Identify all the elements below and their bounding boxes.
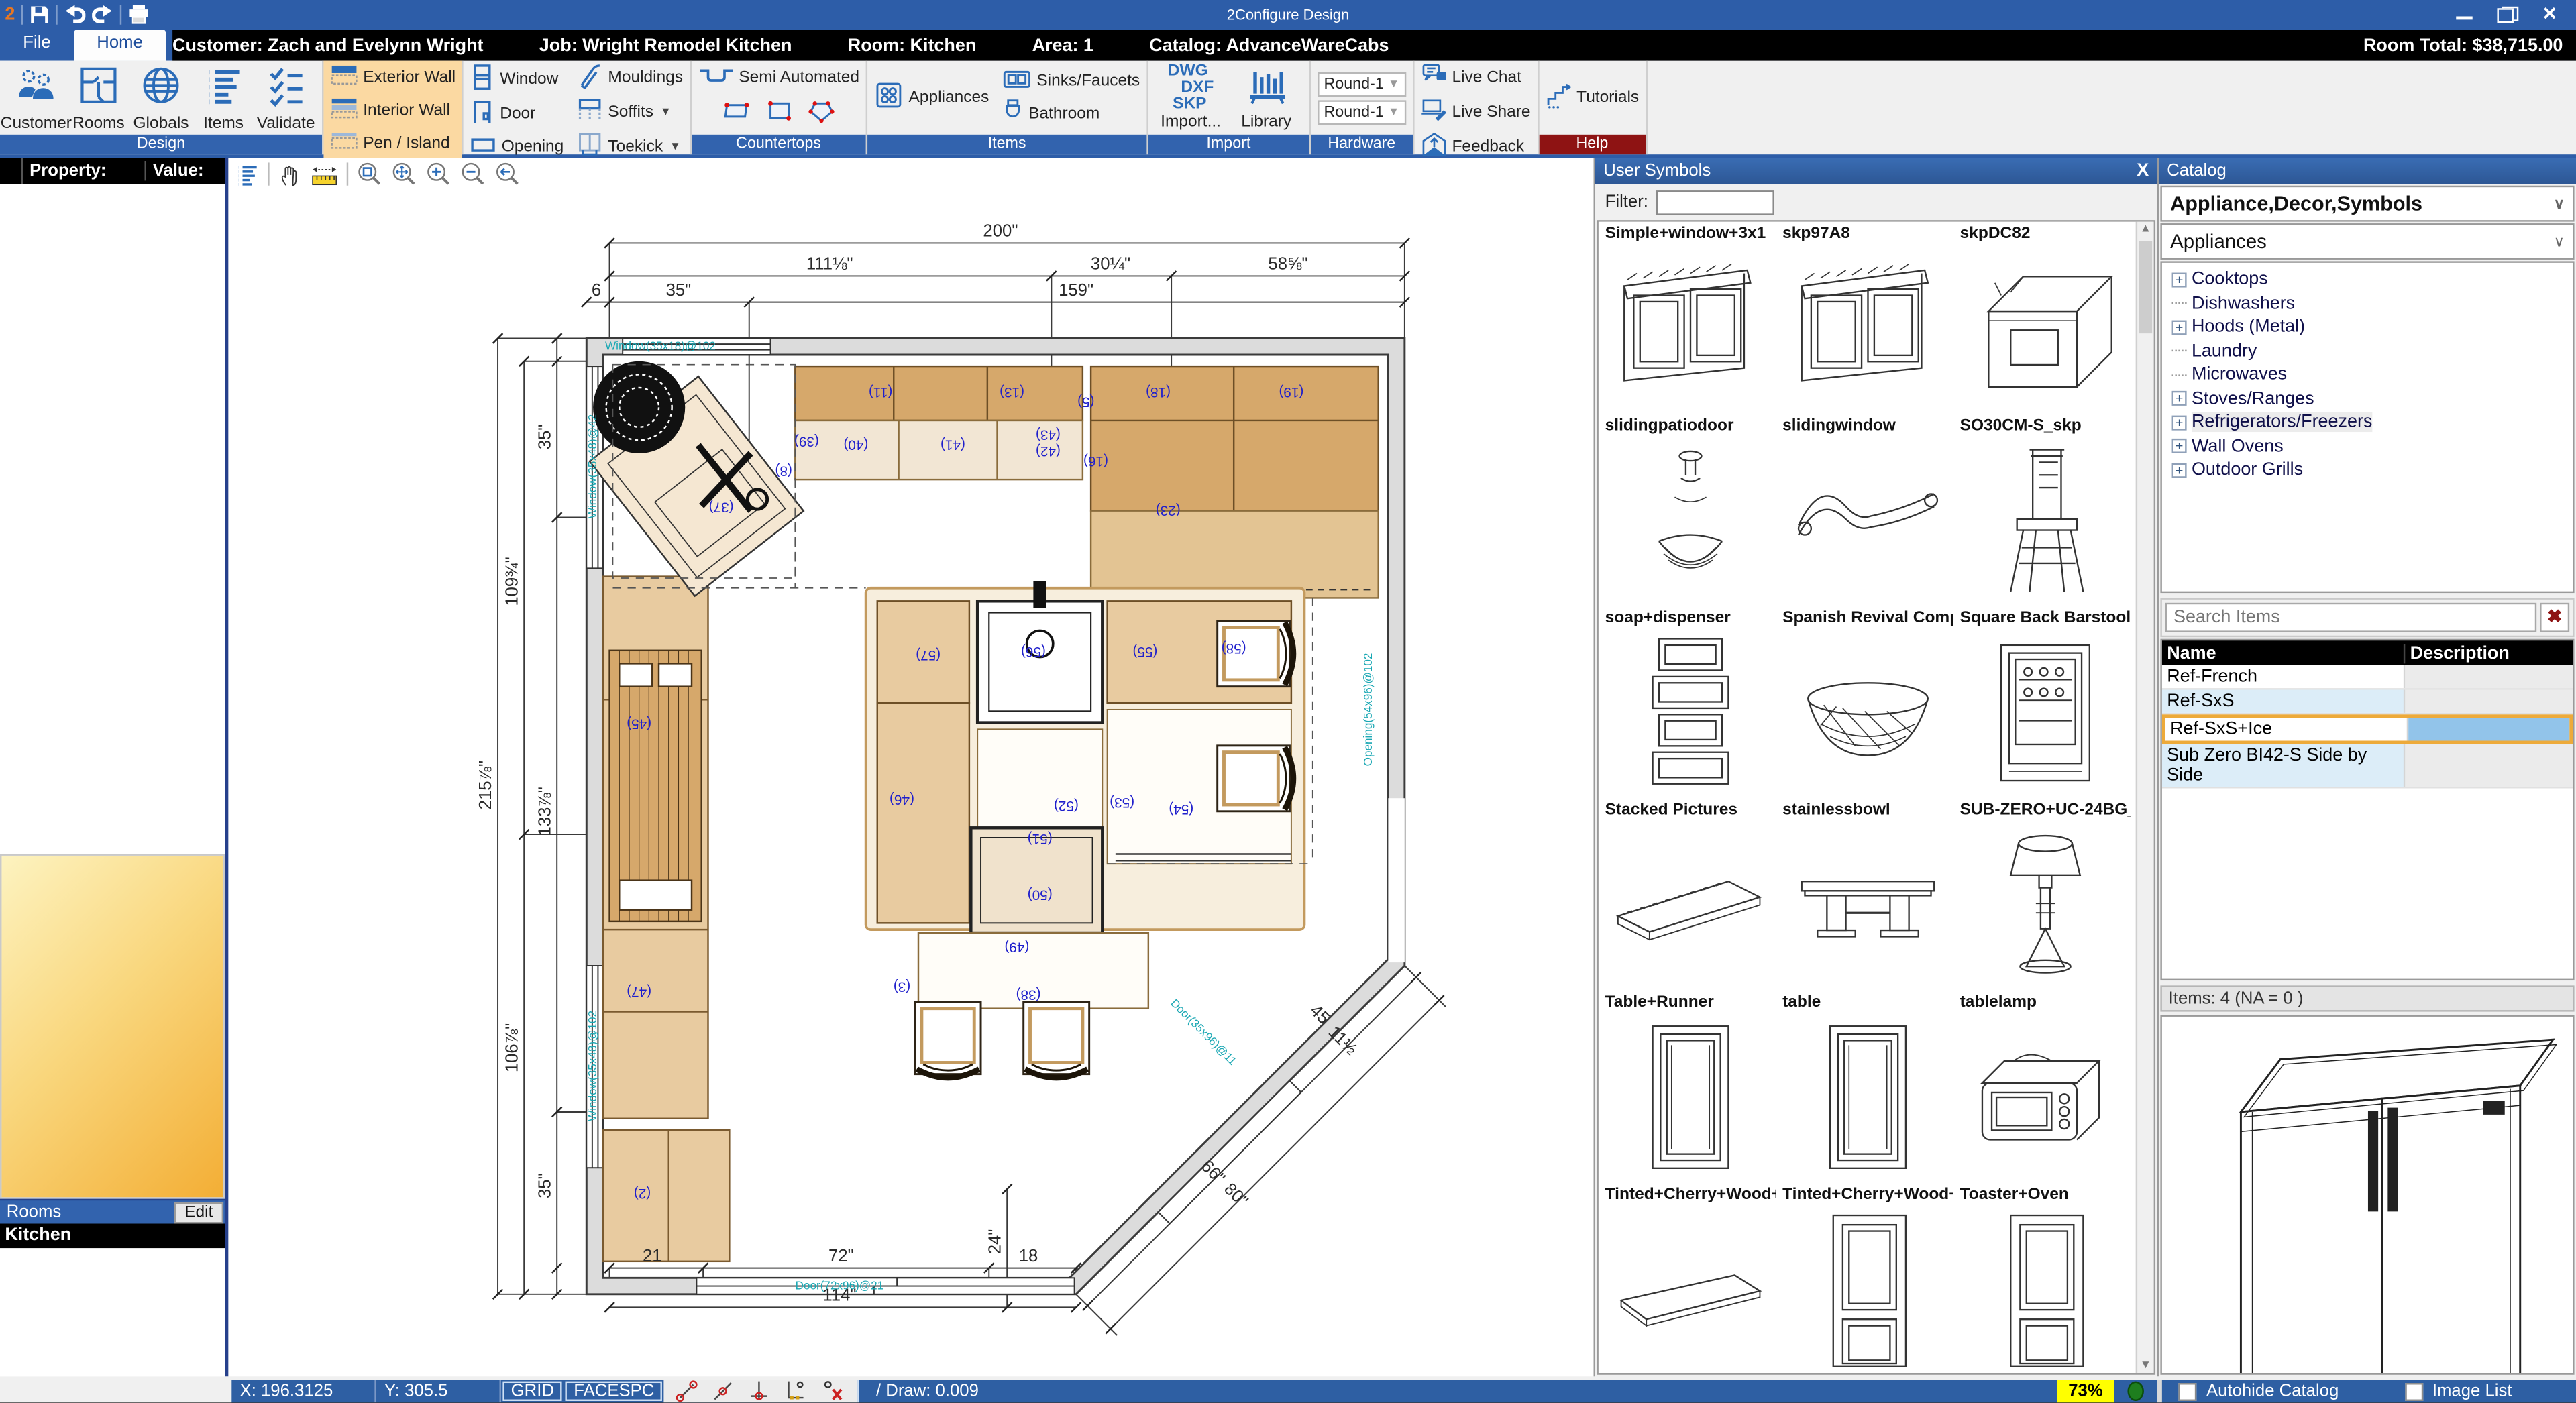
chevron-down-icon: ∨ <box>2554 233 2565 251</box>
ribbon: CustomerRoomsGlobalsItemsValidateDesignE… <box>0 61 2576 158</box>
tree-expand-icon[interactable]: + <box>2172 320 2187 335</box>
import-button[interactable]: DWGDXFSKPImport... <box>1155 64 1227 131</box>
symbol-sub-zero-uc-24bg-0[interactable]: SUB-ZERO+UC-24BG_0 <box>1957 801 2134 994</box>
ctpoly-icon[interactable] <box>808 100 835 131</box>
window-icon <box>470 64 495 96</box>
symbol-tinted-cherry-wood-[interactable]: Tinted+Cherry+Wood+ <box>1779 1186 1956 1373</box>
customer-button[interactable]: Customer <box>7 63 66 132</box>
symbol-square-back-barstool[interactable]: Square Back Barstool <box>1957 610 2134 802</box>
symbol-label: Spanish Revival Compl <box>1782 610 1953 631</box>
item-label: (57) <box>916 647 941 663</box>
property-column-header: Property: <box>23 161 146 180</box>
symbol-label: skpDC82 <box>1960 225 2131 247</box>
tree-item-microwaves[interactable]: Microwaves <box>2172 363 2573 387</box>
table-row-ref-french[interactable]: Ref-French <box>2162 665 2573 690</box>
category-select[interactable]: Appliances∨ <box>2160 223 2574 260</box>
symbol-stainlessbowl[interactable]: stainlessbowl <box>1779 801 1956 994</box>
ribbon-group-label: Import <box>1148 135 1309 154</box>
draw-time: / Draw: 0.009 <box>858 1380 979 1402</box>
job-info-bar: Customer: Zach and Evelynn Wright Job: W… <box>172 30 2576 61</box>
itemslist-icon <box>202 63 245 114</box>
restore-button[interactable] <box>2497 7 2516 23</box>
symbol-table-runner[interactable]: Table+Runner <box>1602 994 1779 1186</box>
mouldings-button[interactable]: Mouldings <box>577 62 683 94</box>
sinks-faucets-button[interactable]: Sinks/Faucets <box>1002 66 1140 95</box>
ribbon-group-design: CustomerRoomsGlobalsItemsValidateDesign <box>0 61 323 155</box>
table-row-ref-sxs[interactable]: Ref-SxS <box>2162 690 2573 715</box>
column-header-name[interactable]: Name <box>2162 643 2405 663</box>
ribbon-group-label: Design <box>0 135 322 154</box>
table-row-ref-sxs-ice[interactable]: Ref-SxS+Ice <box>2162 714 2573 744</box>
dimension-label: 111⅛" <box>806 255 853 274</box>
dimension-label: 21 <box>643 1247 662 1266</box>
symbol-label: SO30CM-S_skp <box>1960 417 2131 439</box>
clear-search-icon[interactable]: ✖ <box>2540 603 2569 632</box>
info-customer: Customer: Zach and Evelynn Wright <box>172 36 484 55</box>
symbol-tablelamp[interactable]: tablelamp <box>1957 994 2134 1186</box>
opening-icon <box>470 133 496 161</box>
tree-item-laundry[interactable]: Laundry <box>2172 339 2573 363</box>
item-label: (8) <box>775 463 792 479</box>
symbol-label: SUB-ZERO+UC-24BG_0 <box>1960 801 2131 823</box>
tree-item-dishwashers[interactable]: Dishwashers <box>2172 292 2573 316</box>
item-label: (16) <box>1083 453 1108 469</box>
info-catalog: Catalog: AdvanceWareCabs <box>1149 36 1389 55</box>
hardware-select-1[interactable]: Round-1▼ <box>1318 72 1406 97</box>
door-icon <box>470 99 495 130</box>
item-label: (45) <box>627 716 651 732</box>
zoomprev-icon[interactable] <box>494 161 521 187</box>
symbol-skp97a8[interactable]: skp97A8 <box>1779 225 1956 418</box>
ribbon-group-sketch-walls: Exterior WallInterior WallPen / IslandSk… <box>323 61 464 155</box>
snap-midpoint-icon[interactable] <box>712 1380 735 1402</box>
dimension-label: 106⅞" <box>502 1023 521 1072</box>
dimension-label: 35" <box>666 281 692 300</box>
cursor-y: Y: 305.5 <box>376 1380 501 1402</box>
tab-home[interactable]: Home <box>74 30 166 61</box>
tree-expand-icon[interactable]: + <box>2172 391 2187 406</box>
hardware-select-2[interactable]: Round-1▼ <box>1318 99 1406 124</box>
room-total: Room Total: $38,715.00 <box>2363 36 2563 55</box>
bath-icon <box>1002 98 1024 129</box>
snap-perpendicular-icon[interactable] <box>748 1380 771 1402</box>
door-button[interactable]: Door <box>470 99 563 130</box>
minimize-button[interactable] <box>2455 7 2474 23</box>
appliances-button[interactable]: Appliances <box>874 80 989 115</box>
symbol-soap-dispenser[interactable]: soap+dispenser <box>1602 610 1779 802</box>
ribbon-group-tech-support: Live ChatLive ShareFeedbackTech Support <box>1414 61 1539 155</box>
item-label: (13) <box>1000 384 1024 400</box>
range <box>590 361 804 596</box>
item-label: (42) <box>1036 443 1061 459</box>
tree-item-label: Laundry <box>2192 341 2257 361</box>
symbol-label: slidingwindow <box>1782 417 1953 439</box>
symbol-table[interactable]: table <box>1779 994 1956 1186</box>
symbol-slidingwindow[interactable]: slidingwindow <box>1779 417 1956 610</box>
tree-item-label: Hoods (Metal) <box>2192 317 2305 337</box>
rooms-button[interactable]: Rooms <box>69 63 128 132</box>
item-label: (37) <box>709 499 734 514</box>
dimension-label: 159" <box>1059 281 1093 300</box>
item-label: (47) <box>627 984 651 999</box>
dimension-label: 30¼" <box>1091 255 1130 274</box>
counterauto-icon <box>698 64 734 93</box>
info-area: Area: 1 <box>1032 36 1093 55</box>
tree-item-cooktops[interactable]: +Cooktops <box>2172 268 2573 292</box>
symbol-label: Toaster+Oven <box>1960 1186 2131 1207</box>
chat-icon <box>1421 62 1447 94</box>
ribbon-group-countertops: Semi AutomatedCountertops <box>691 61 867 155</box>
user-symbols-panel: User Symbols X Filter: Simple+window+3x1… <box>1594 158 2157 1376</box>
symbol-simple-window-3x1[interactable]: Simple+window+3x1 <box>1602 225 1779 418</box>
item-label: (53) <box>1110 795 1134 810</box>
drawing-canvas[interactable]: 200"111⅛"30¼"58⅝"635"159"215⅞"109¾"106⅞"… <box>228 158 1593 1376</box>
tree-item-outdoor-grills[interactable]: +Outdoor Grills <box>2172 458 2573 482</box>
symbol-so30cm-s-skp[interactable]: SO30CM-S_skp <box>1957 417 2134 610</box>
symbol-spanish-revival-compl[interactable]: Spanish Revival Compl <box>1779 610 1956 802</box>
ruler-icon[interactable] <box>311 162 339 186</box>
chevron-down-icon: ∨ <box>2554 194 2565 213</box>
status-bar: X: 196.3125 Y: 305.5 GRID FACESPC / Draw… <box>231 1380 2576 1402</box>
render-preview <box>0 854 225 1198</box>
dimension-label: 18 <box>1019 1247 1038 1266</box>
wallint-icon <box>330 95 358 125</box>
ribbon-group-label: Items <box>867 135 1146 154</box>
symbol-label: Square Back Barstool <box>1960 610 2131 631</box>
progress-badge: 73% <box>2057 1380 2114 1402</box>
catalog-title: Catalog <box>2167 161 2226 180</box>
value-column-header: Value: <box>146 161 225 180</box>
filter-label: Filter: <box>1605 192 1648 212</box>
bathroom-button[interactable]: Bathroom <box>1002 98 1140 129</box>
item-label: (58) <box>1222 640 1246 656</box>
window-button[interactable]: Window <box>470 64 563 96</box>
interior-wall-button[interactable]: Interior Wall <box>330 95 455 125</box>
symbol-label: Tinted+Cherry+Wood+ <box>1782 1186 1953 1207</box>
items-button[interactable]: Items <box>194 63 253 132</box>
symbol-label: skp97A8 <box>1782 225 1953 247</box>
title-bar: 2 2Configure Design ✕ <box>0 0 2576 30</box>
dimension-label: 24" <box>985 1229 1004 1255</box>
symbol-slidingpatiodoor[interactable]: slidingpatiodoor <box>1602 417 1779 610</box>
wallext-icon <box>330 62 358 92</box>
ribbon-group-import: DWGDXFSKPImport...LibraryImport <box>1148 61 1310 155</box>
grid-toggle[interactable]: GRID <box>502 1382 562 1401</box>
symbol-label: Stacked Pictures <box>1605 801 1776 823</box>
symbol-label: Table+Runner <box>1605 994 1776 1015</box>
property-panel: Property: Value: Rooms Edit Kitchen <box>0 158 228 1376</box>
catalog-tree: +CooktopsDishwashers+Hoods (Metal)Laundr… <box>2160 261 2574 593</box>
tree-expand-icon[interactable]: + <box>2172 272 2187 287</box>
item-label: (11) <box>869 384 892 400</box>
image-list-checkbox[interactable] <box>2404 1382 2422 1400</box>
globe-icon <box>140 63 182 114</box>
item-label: (39) <box>794 433 819 449</box>
column-header-description[interactable]: Description <box>2405 643 2573 663</box>
item-label: (52) <box>1054 798 1079 813</box>
ctsquare-icon[interactable] <box>767 100 792 131</box>
info-job: Job: Wright Remodel Kitchen <box>539 36 792 55</box>
dimension-label: 80" <box>1220 1180 1251 1211</box>
close-button[interactable]: ✕ <box>2540 7 2559 23</box>
item-label: (50) <box>1028 887 1053 902</box>
tree-item-label: Cooktops <box>2192 270 2268 289</box>
item-label: (49) <box>1004 940 1029 955</box>
item-label: (40) <box>843 437 868 452</box>
tree-expand-icon[interactable]: + <box>2172 415 2187 430</box>
tree-expand-icon[interactable]: + <box>2172 463 2187 478</box>
item-label: (2) <box>634 1186 651 1201</box>
tree-item-label: Microwaves <box>2192 365 2287 384</box>
search-items-input[interactable] <box>2165 603 2536 632</box>
symbol-toaster-oven[interactable]: Toaster+Oven <box>1957 1186 2134 1373</box>
zoomin-icon[interactable] <box>425 161 451 187</box>
snap-toolbar <box>664 1380 858 1402</box>
filter-input[interactable] <box>1656 190 1774 215</box>
dimension-label: 215⅞" <box>476 761 495 809</box>
dimension-label: 35" <box>535 1173 554 1198</box>
symbols-scrollbar[interactable]: ▲▼ <box>2136 222 2154 1373</box>
item-label: (51) <box>1028 831 1053 846</box>
symbols-grid: Simple+window+3x1skp97A8skpDC82slidingpa… <box>1602 225 2134 1373</box>
tree-item-label: Dishwashers <box>2192 294 2295 313</box>
tutorials-icon <box>1546 82 1572 113</box>
wall-label: Door(35x96)@11 <box>1168 996 1239 1067</box>
user-symbols-close-icon[interactable]: X <box>2137 161 2149 180</box>
appliances-icon <box>874 80 904 115</box>
soffits-button[interactable]: Soffits▼ <box>577 97 683 128</box>
tree-item-hoods-metal-[interactable]: +Hoods (Metal) <box>2172 315 2573 339</box>
dimension-label: 133⅞" <box>535 787 554 836</box>
item-label: (23) <box>1156 502 1181 518</box>
ribbon-tabs: FileHome <box>0 30 166 61</box>
wall-label: Door(72x96)@21 <box>796 1278 884 1292</box>
dimension-label: 6 <box>592 281 601 300</box>
snap-endpoint-icon[interactable] <box>676 1380 698 1402</box>
window-title: 2Configure Design <box>0 7 2576 23</box>
symbol-label: soap+dispenser <box>1605 610 1776 631</box>
tree-item-label: Refrigerators/Freezers <box>2192 412 2373 432</box>
live-chat-button[interactable]: Live Chat <box>1421 62 1531 94</box>
tutorials-button[interactable]: Tutorials <box>1546 82 1640 113</box>
item-label: (5) <box>1077 394 1094 410</box>
ribbon-group-label: Countertops <box>691 135 866 154</box>
ribbon-group-label: Hardware <box>1311 135 1413 154</box>
image-list-label: Image List <box>2432 1382 2512 1401</box>
room-list-item[interactable]: Kitchen <box>0 1223 225 1248</box>
symbol-label: slidingpatiodoor <box>1605 417 1776 439</box>
catalog-panel: Catalog Appliance,Decor,Symbols∨ Applian… <box>2157 158 2576 1376</box>
sink-icon <box>1002 66 1032 95</box>
tree-item-wall-ovens[interactable]: +Wall Ovens <box>2172 435 2573 459</box>
item-preview <box>2160 1015 2574 1374</box>
autohide-catalog-checkbox[interactable] <box>2178 1382 2196 1400</box>
item-label: (18) <box>1146 384 1171 400</box>
wall-label: Opening(54x96)@102 <box>1361 653 1375 767</box>
cursor-x: X: 196.3125 <box>231 1380 376 1402</box>
symbol-skpdc82[interactable]: skpDC82 <box>1957 225 2134 418</box>
ctrect-icon[interactable] <box>722 100 751 131</box>
dimension-label: 35" <box>535 425 554 450</box>
library-button[interactable]: Library <box>1230 65 1303 131</box>
soffit-icon <box>577 97 603 128</box>
status-indicator <box>2114 1380 2157 1402</box>
layerslist-icon[interactable] <box>235 162 260 186</box>
ribbon-group-items: AppliancesSinks/FaucetsBathroomItems <box>867 61 1148 155</box>
tree-item-refrigerators-freezers[interactable]: +Refrigerators/Freezers <box>2172 410 2573 435</box>
item-label: (43) <box>1036 427 1061 443</box>
catalog-select[interactable]: Appliance,Decor,Symbols∨ <box>2160 186 2574 222</box>
user-symbols-title: User Symbols <box>1603 161 1711 180</box>
catalog-table: NameDescriptionRef-FrenchRef-SxSRef-SxS+… <box>2160 639 2574 980</box>
moulding-icon <box>577 62 603 94</box>
item-label: (54) <box>1169 801 1193 817</box>
ribbon-group-hardware: Round-1▼Round-1▼Hardware <box>1311 61 1414 155</box>
wall-label: Window(35x48)@42 <box>586 414 599 518</box>
item-label: (41) <box>941 437 965 452</box>
symbol-stacked-pictures[interactable]: Stacked Pictures <box>1602 801 1779 994</box>
info-room: Room: Kitchen <box>848 36 977 55</box>
globals-button[interactable]: Globals <box>131 63 191 132</box>
validate-button[interactable]: Validate <box>256 63 315 132</box>
app-window: 2 2Configure Design ✕ FileHome Customer:… <box>0 0 2576 1402</box>
tab-file[interactable]: File <box>0 30 74 61</box>
rooms-icon <box>77 63 120 114</box>
rooms-header: Rooms <box>0 1202 174 1222</box>
validate-icon <box>264 63 307 114</box>
tree-item-label: Outdoor Grills <box>2192 460 2303 480</box>
property-grid[interactable] <box>0 184 225 854</box>
exterior-wall-button[interactable]: Exterior Wall <box>330 62 455 92</box>
ribbon-group-help: TutorialsHelp <box>1539 61 1648 155</box>
live-share-button[interactable]: Live Share <box>1421 97 1531 128</box>
table-row-sub-zero-bi42-s-side-by-side[interactable]: Sub Zero BI42-S Side by Side <box>2162 744 2573 788</box>
zoomwindow-icon[interactable] <box>356 161 382 187</box>
symbol-label: Tinted+Cherry+Wood+ <box>1605 1186 1776 1207</box>
snap-intersection-icon[interactable] <box>784 1380 807 1402</box>
items-count: Items: 4 (NA = 0 ) <box>2160 985 2574 1011</box>
zoomextents-icon[interactable] <box>391 161 417 187</box>
snap-angle-off-icon[interactable] <box>820 1380 847 1402</box>
dimension-label: 109¾" <box>502 557 521 606</box>
wall-label: Window(35x48)@102 <box>586 1011 599 1121</box>
canvas-toolbar <box>235 161 521 187</box>
room-list: Kitchen <box>0 1223 225 1248</box>
hand-icon[interactable] <box>278 162 303 186</box>
autohide-catalog-label: Autohide Catalog <box>2206 1382 2339 1401</box>
wall-label: Window(35x18)@102 <box>605 339 716 353</box>
item-label: (3) <box>894 978 910 994</box>
symbol-label: table <box>1782 994 1953 1015</box>
tree-item-label: Wall Ovens <box>2192 437 2284 456</box>
symbol-tinted-cherry-wood-[interactable]: Tinted+Cherry+Wood+ <box>1602 1186 1779 1373</box>
item-label: (55) <box>1132 644 1157 659</box>
wallpen-icon <box>330 128 358 158</box>
tree-item-stoves-ranges[interactable]: +Stoves/Ranges <box>2172 387 2573 411</box>
edit-rooms-button[interactable]: Edit <box>174 1201 223 1223</box>
semi-automated-button[interactable]: Semi Automated <box>698 64 859 93</box>
tree-item-label: Stoves/Ranges <box>2192 389 2314 408</box>
ribbon-group-room: WindowDoorOpeningMouldingsSoffits▼Toekic… <box>464 61 691 155</box>
library-icon <box>1245 65 1288 113</box>
item-label: (46) <box>890 791 914 807</box>
symbol-label: stainlessbowl <box>1782 801 1953 823</box>
floor-plan[interactable]: 200"111⅛"30¼"58⅝"635"159"215⅞"109¾"106⅞"… <box>228 158 1583 1376</box>
ribbon-group-label: Help <box>1539 135 1646 154</box>
tree-expand-icon[interactable]: + <box>2172 439 2187 453</box>
pen-island-button[interactable]: Pen / Island <box>330 128 455 158</box>
dimension-label: 72" <box>828 1247 854 1266</box>
dimension-label: 200" <box>983 222 1018 241</box>
symbol-label: tablelamp <box>1960 994 2131 1015</box>
zoomout-icon[interactable] <box>460 161 486 187</box>
item-label: (19) <box>1279 384 1303 400</box>
dimension-label: 58⅝" <box>1268 255 1307 274</box>
customer-icon <box>15 63 58 114</box>
facespc-toggle[interactable]: FACESPC <box>566 1382 663 1401</box>
symbol-label: Simple+window+3x1 <box>1605 225 1776 247</box>
item-label: (56) <box>1021 644 1046 659</box>
opening-button[interactable]: Opening <box>470 133 563 161</box>
share-icon <box>1421 97 1447 128</box>
item-label: (38) <box>1016 987 1041 1003</box>
